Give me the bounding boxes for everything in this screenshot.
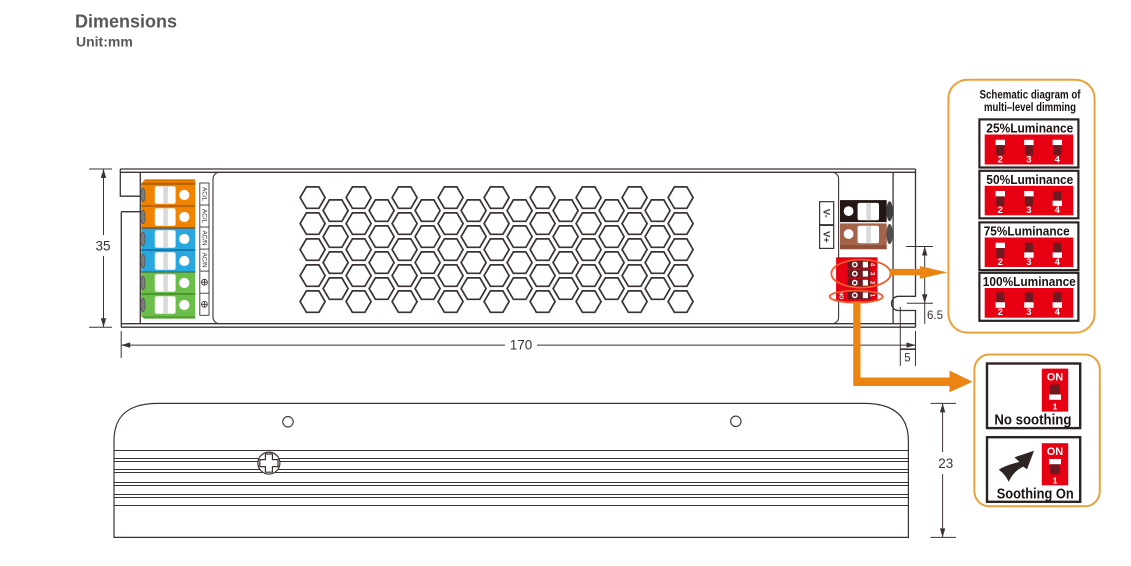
svg-text:2: 2 [998, 307, 1003, 318]
svg-text:ON: ON [1047, 446, 1064, 458]
svg-text:5: 5 [904, 353, 910, 365]
svg-text:3: 3 [1026, 257, 1031, 268]
svg-text:4: 4 [1055, 307, 1061, 318]
svg-text:V-: V- [820, 209, 831, 218]
svg-text:3: 3 [1026, 205, 1031, 216]
svg-text:AC/L: AC/L [200, 209, 207, 223]
svg-text:2: 2 [998, 155, 1003, 166]
svg-text:Dimensions: Dimensions [75, 12, 177, 32]
svg-text:3: 3 [1026, 307, 1031, 318]
svg-text:25%Luminance: 25%Luminance [986, 122, 1073, 136]
svg-text:4: 4 [1055, 205, 1061, 216]
svg-text:1: 1 [1053, 476, 1058, 486]
svg-text:4: 4 [1055, 257, 1061, 268]
svg-text:V+: V+ [820, 231, 831, 243]
svg-text:No soothing: No soothing [994, 413, 1071, 429]
svg-text:multi–level dimming: multi–level dimming [984, 100, 1076, 114]
svg-text:1: 1 [1053, 402, 1058, 412]
svg-text:2: 2 [998, 205, 1003, 216]
svg-text:4: 4 [1055, 155, 1061, 166]
svg-text:100%Luminance: 100%Luminance [983, 275, 1076, 289]
svg-text:ON: ON [1047, 372, 1064, 384]
svg-text:AC/L: AC/L [200, 187, 207, 201]
svg-text:Soothing On: Soothing On [997, 486, 1074, 502]
svg-text:6.5: 6.5 [927, 310, 943, 322]
svg-text:AC/N: AC/N [200, 230, 207, 245]
svg-text:50%Luminance: 50%Luminance [986, 173, 1073, 187]
svg-text:23: 23 [938, 456, 953, 471]
svg-text:35: 35 [95, 239, 110, 254]
svg-text:75%Luminance: 75%Luminance [984, 225, 1070, 239]
svg-text:3: 3 [1026, 155, 1031, 166]
svg-text:170: 170 [510, 338, 533, 353]
svg-text:Unit:mm: Unit:mm [76, 34, 133, 50]
svg-text:2: 2 [998, 257, 1003, 268]
svg-text:AC/N: AC/N [200, 253, 207, 268]
svg-text:Schematic diagram of: Schematic diagram of [980, 87, 1082, 101]
